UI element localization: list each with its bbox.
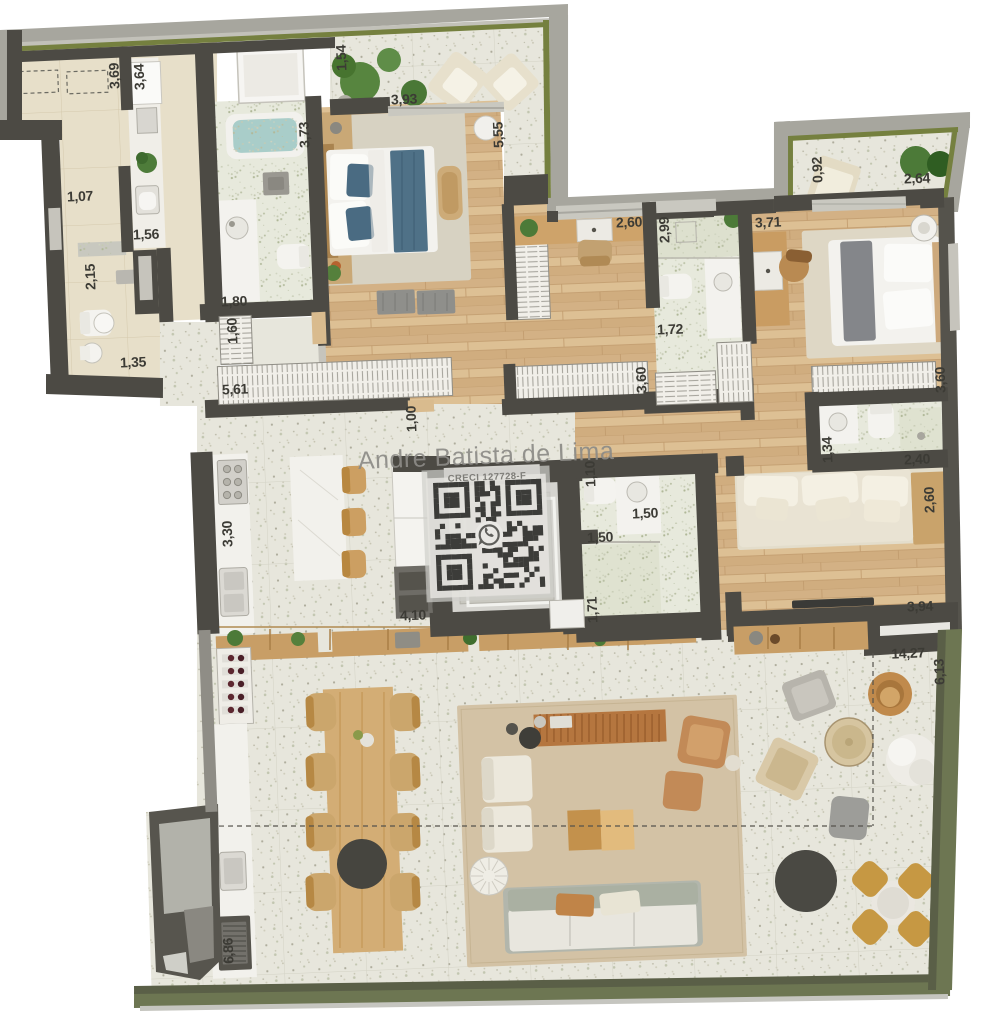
svg-text:1,60: 1,60 — [223, 317, 240, 344]
svg-text:1,54: 1,54 — [333, 44, 350, 71]
svg-text:14,27: 14,27 — [891, 644, 926, 661]
svg-text:3,71: 3,71 — [755, 213, 782, 230]
svg-text:5,61: 5,61 — [222, 380, 249, 397]
svg-text:1,35: 1,35 — [120, 353, 147, 370]
svg-text:2,15: 2,15 — [82, 263, 99, 290]
svg-text:6,86: 6,86 — [219, 937, 236, 964]
svg-text:3,64: 3,64 — [131, 63, 148, 90]
svg-text:1,71: 1,71 — [583, 596, 600, 623]
svg-text:3,73: 3,73 — [296, 121, 313, 148]
svg-text:2,40: 2,40 — [904, 450, 931, 467]
svg-text:3,60: 3,60 — [932, 366, 949, 393]
svg-text:1,72: 1,72 — [657, 321, 684, 338]
svg-text:4,10: 4,10 — [400, 606, 427, 623]
svg-text:0,92: 0,92 — [808, 156, 825, 183]
svg-text:3,93: 3,93 — [391, 90, 418, 107]
svg-text:1,00: 1,00 — [402, 405, 419, 432]
svg-text:1,50: 1,50 — [632, 504, 659, 521]
svg-text:1,34: 1,34 — [818, 436, 835, 463]
svg-text:3,94: 3,94 — [907, 598, 934, 615]
svg-text:2,60: 2,60 — [921, 486, 938, 513]
svg-text:1,50: 1,50 — [587, 528, 614, 545]
svg-text:1,56: 1,56 — [133, 226, 160, 243]
svg-text:2,60: 2,60 — [616, 213, 643, 230]
svg-text:2,99: 2,99 — [656, 216, 673, 243]
svg-text:1,80: 1,80 — [221, 293, 248, 310]
svg-text:3,60: 3,60 — [632, 366, 649, 393]
svg-text:3,69: 3,69 — [105, 62, 122, 89]
svg-text:1,07: 1,07 — [67, 187, 94, 204]
svg-text:2,64: 2,64 — [904, 170, 931, 187]
svg-text:3,30: 3,30 — [219, 520, 236, 547]
svg-text:6,13: 6,13 — [930, 658, 947, 685]
svg-text:5,55: 5,55 — [489, 121, 506, 148]
